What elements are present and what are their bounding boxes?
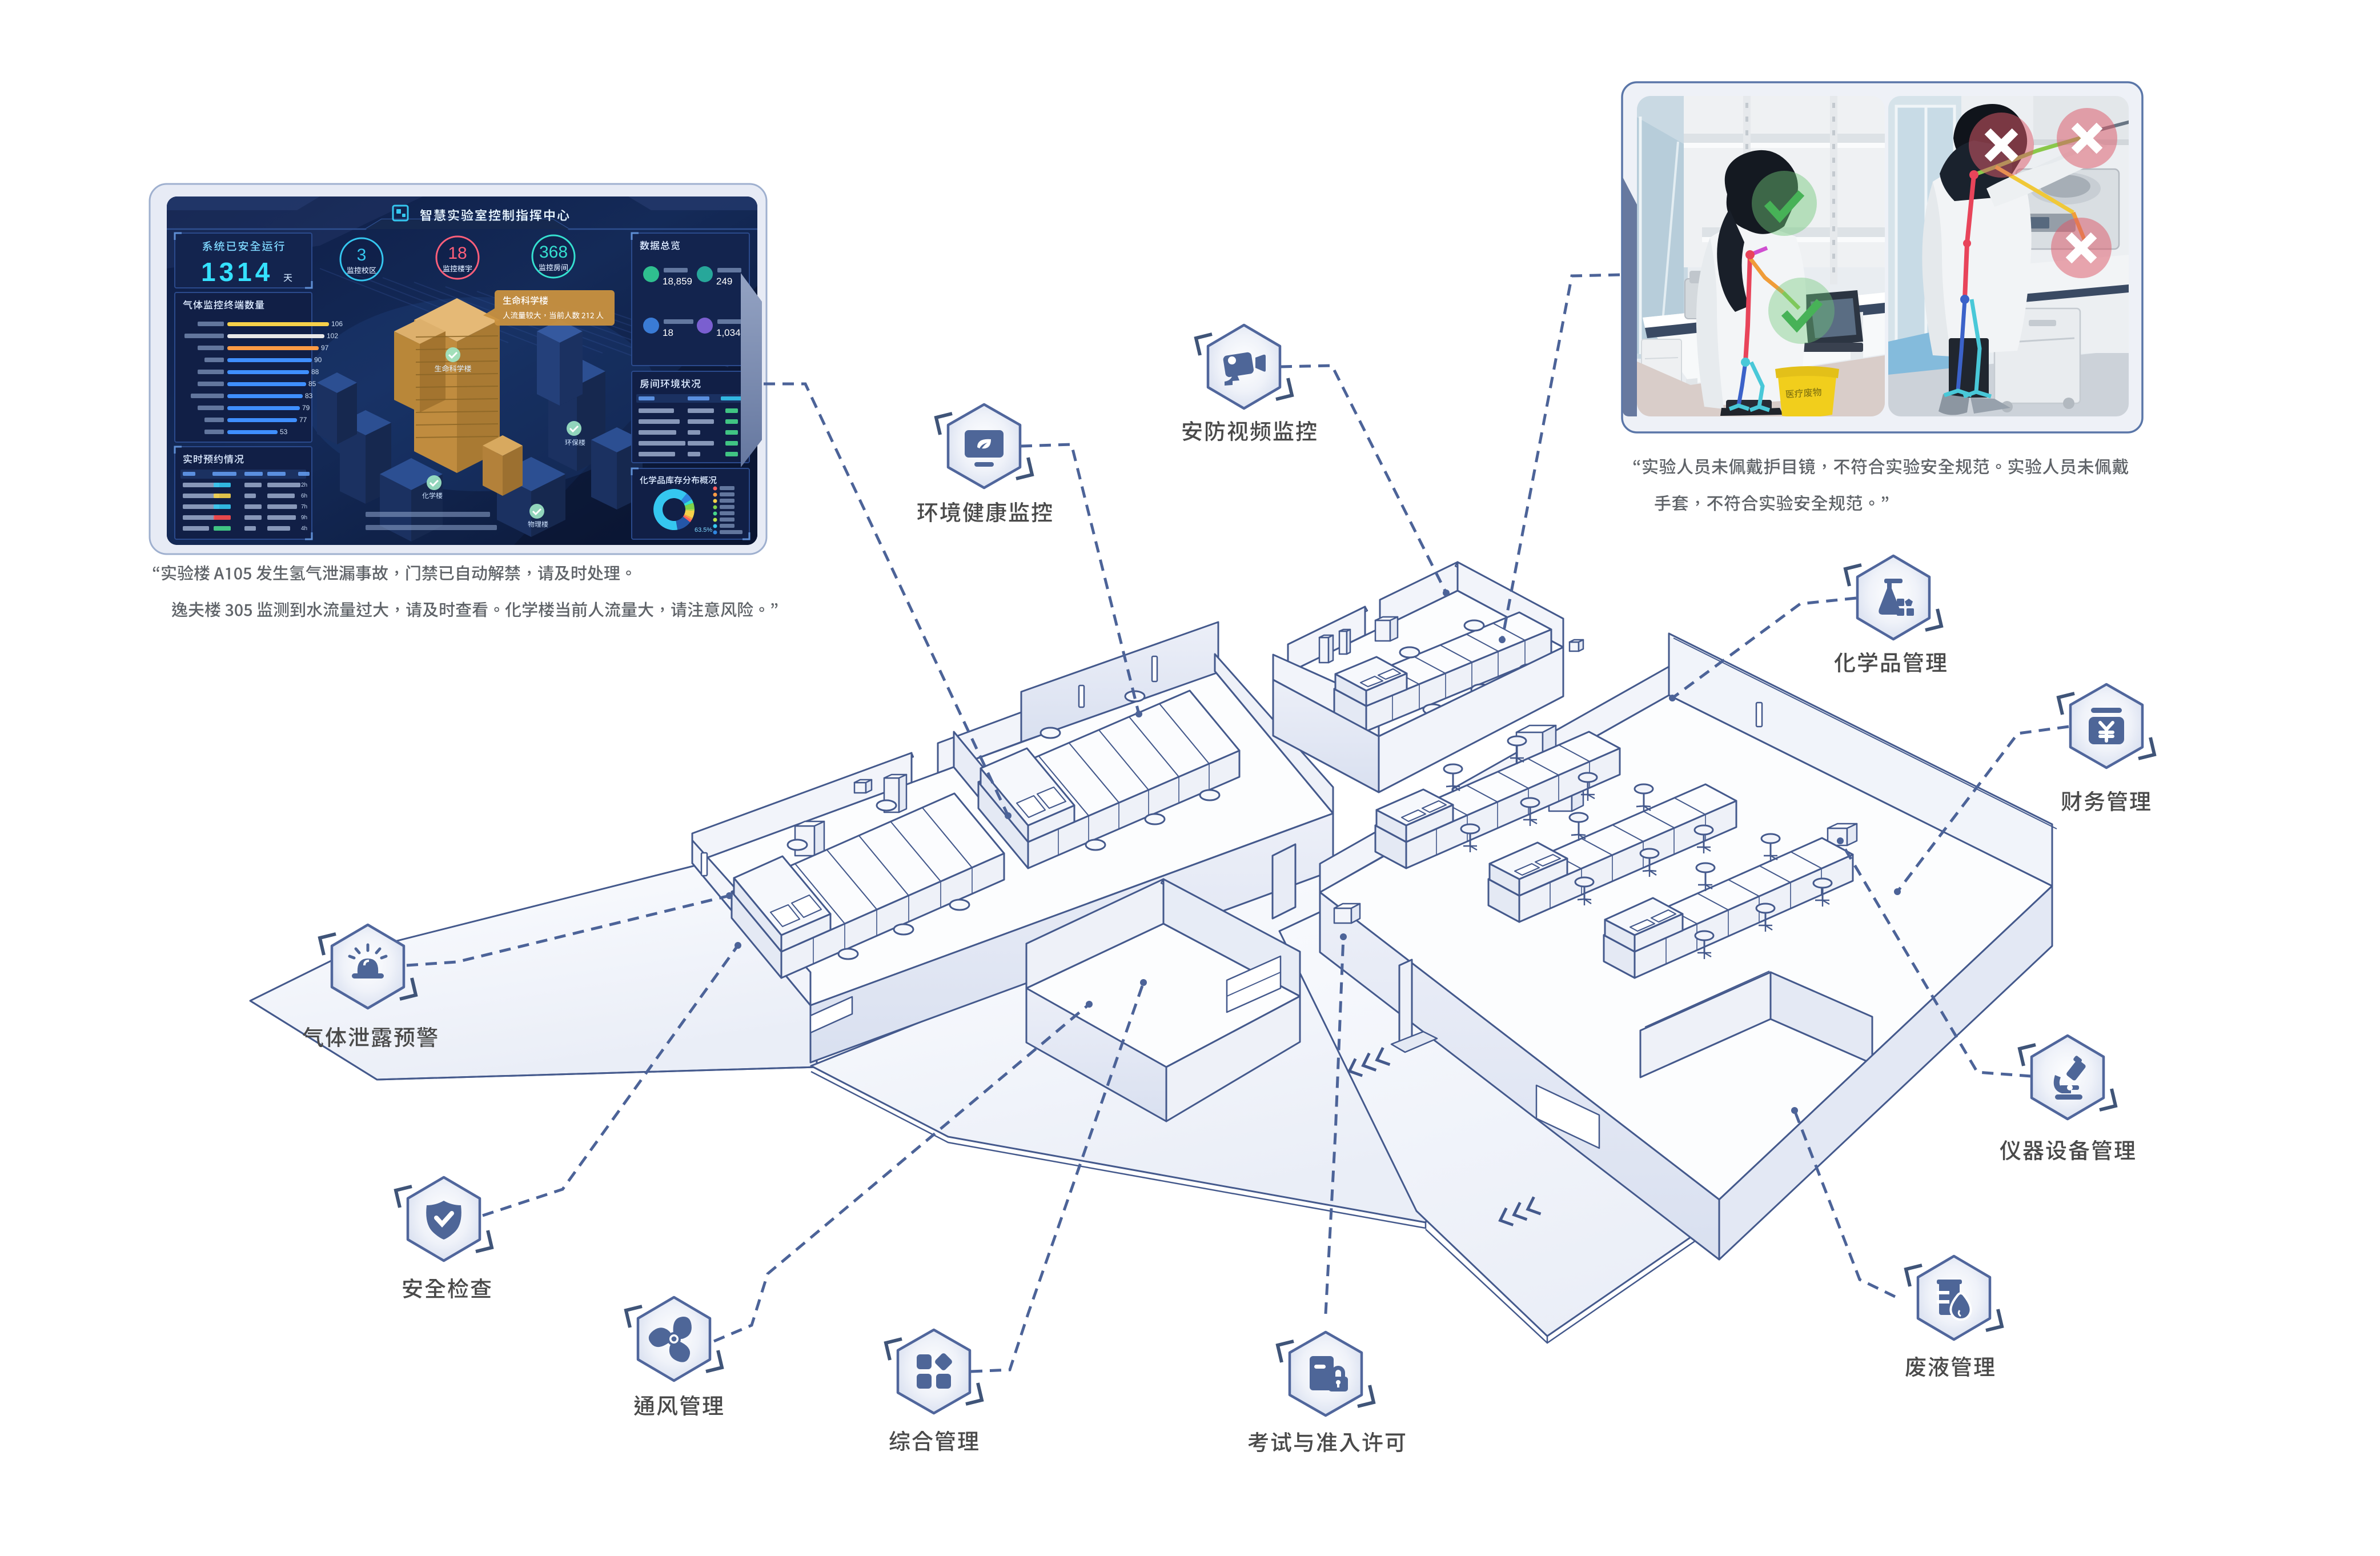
svg-text:3: 3	[357, 246, 367, 264]
svg-text:9h: 9h	[301, 515, 307, 521]
svg-text:97: 97	[321, 344, 329, 352]
svg-text:4h: 4h	[301, 526, 307, 532]
svg-text:18: 18	[448, 244, 467, 263]
svg-text:368: 368	[539, 243, 568, 262]
svg-text:1314: 1314	[201, 257, 273, 287]
svg-text:1,034: 1,034	[716, 327, 741, 338]
svg-text:18,859: 18,859	[663, 276, 692, 287]
svg-text:6h: 6h	[301, 493, 307, 499]
svg-text:88: 88	[311, 368, 319, 376]
svg-text:53: 53	[280, 428, 288, 436]
svg-text:106: 106	[331, 320, 343, 328]
svg-text:83: 83	[305, 392, 313, 400]
svg-text:79: 79	[302, 404, 310, 412]
svg-text:7h: 7h	[301, 504, 307, 510]
svg-text:102: 102	[327, 332, 338, 340]
svg-text:63.5%: 63.5%	[695, 527, 712, 534]
svg-text:77: 77	[299, 416, 307, 424]
svg-text:2h: 2h	[301, 482, 307, 488]
svg-text:249: 249	[716, 276, 732, 287]
svg-text:18: 18	[663, 327, 673, 338]
svg-text:90: 90	[314, 356, 322, 364]
svg-text:85: 85	[308, 380, 316, 388]
